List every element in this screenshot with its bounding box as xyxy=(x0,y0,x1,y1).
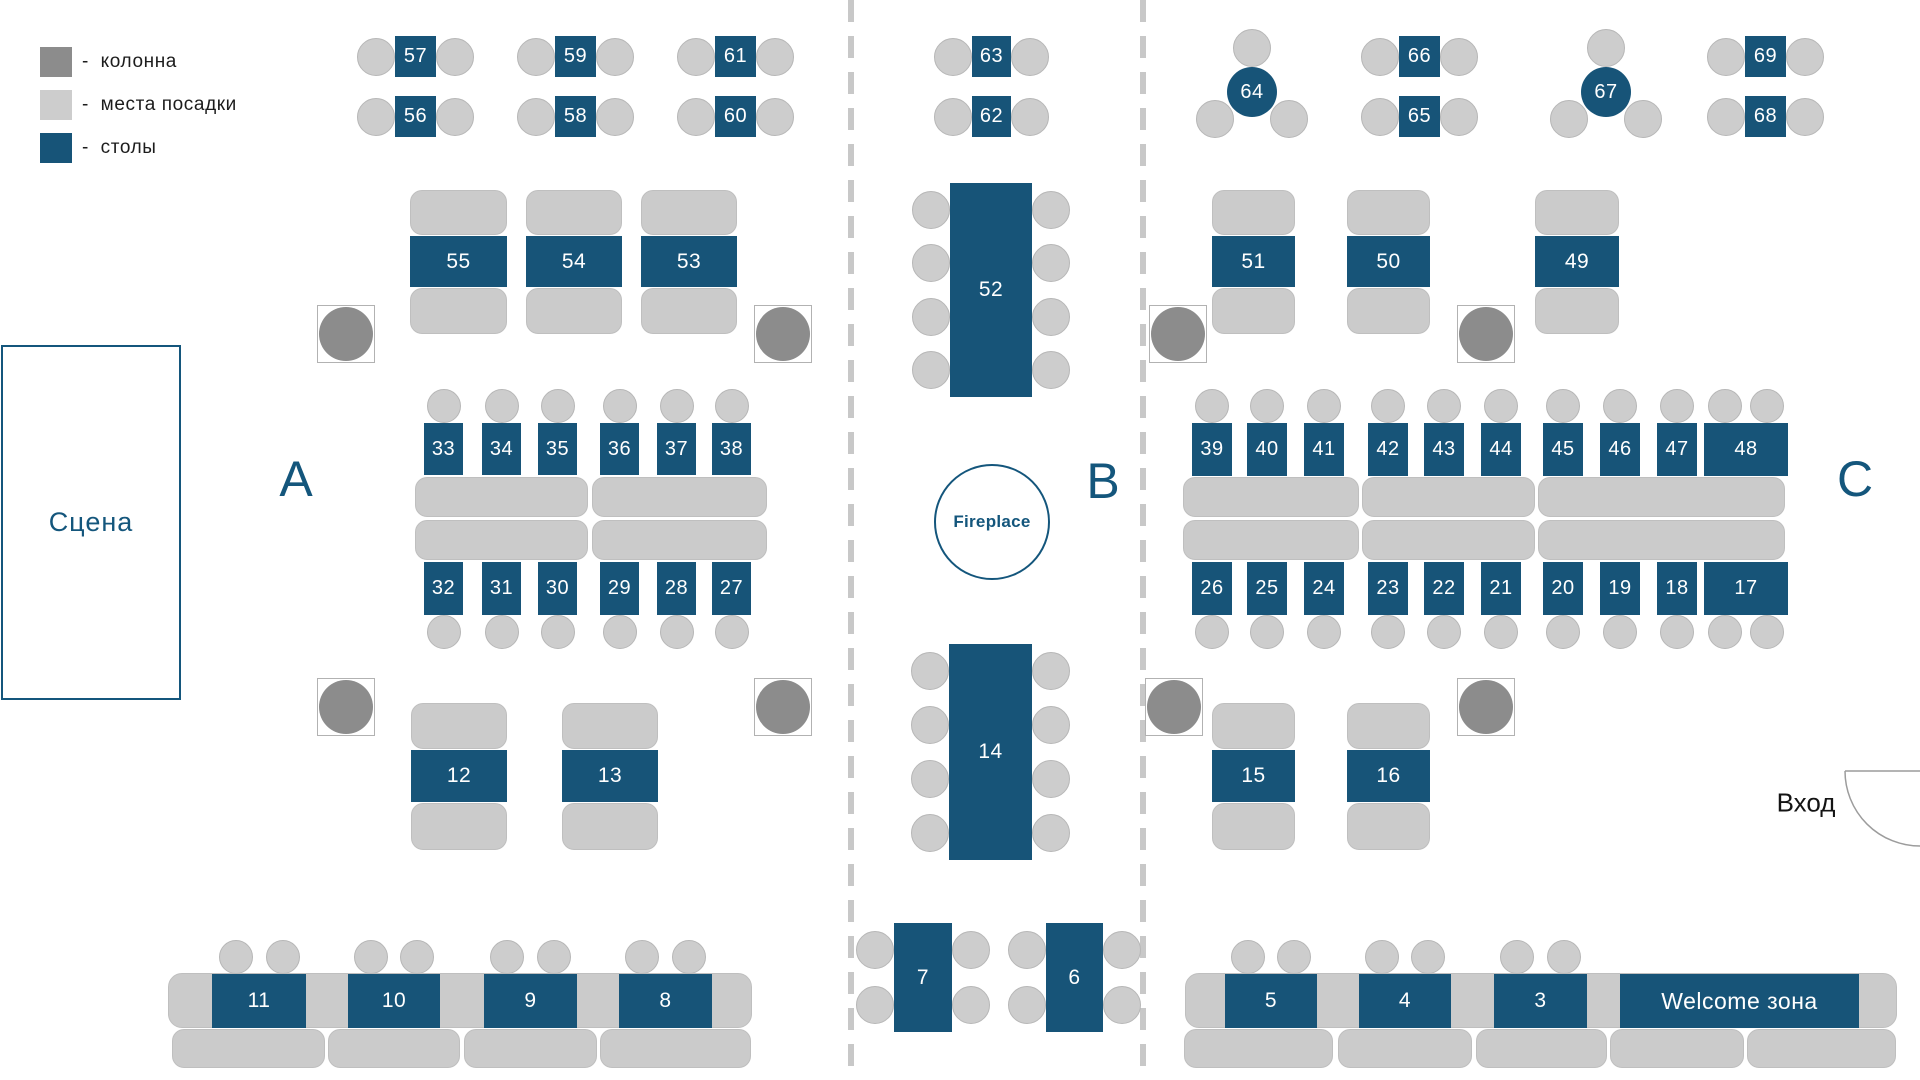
seat xyxy=(952,931,990,969)
seat xyxy=(1032,706,1070,744)
seat xyxy=(436,98,474,136)
seat xyxy=(1750,389,1784,423)
table-15[interactable]: 15 xyxy=(1212,750,1295,802)
seating-bench xyxy=(410,190,507,235)
table-3[interactable]: 3 xyxy=(1494,974,1587,1028)
table-7[interactable]: 7 xyxy=(894,923,952,1032)
seating-bench xyxy=(1538,477,1785,517)
seat xyxy=(1011,38,1049,76)
column-circle xyxy=(1459,680,1513,734)
column-circle xyxy=(756,680,810,734)
table-18[interactable]: 18 xyxy=(1657,562,1697,615)
table-61[interactable]: 61 xyxy=(715,36,756,77)
table-number: 37 xyxy=(665,438,688,461)
table-35[interactable]: 35 xyxy=(538,423,577,475)
table-32[interactable]: 32 xyxy=(424,562,463,615)
table-number: 63 xyxy=(980,45,1003,68)
seat xyxy=(856,931,894,969)
table-number: 6 xyxy=(1068,966,1080,990)
seating-bench xyxy=(411,703,507,749)
welcome-zone-label: Welcome зона xyxy=(1661,988,1817,1015)
seat xyxy=(266,940,300,974)
table-48[interactable]: 48 xyxy=(1704,423,1788,476)
seating-bench xyxy=(1212,703,1295,749)
table-64[interactable]: 64 xyxy=(1227,67,1277,117)
table-68[interactable]: 68 xyxy=(1745,96,1786,137)
seat xyxy=(1307,389,1341,423)
seating-bench xyxy=(1347,190,1430,235)
table-number: 38 xyxy=(720,438,743,461)
table-38[interactable]: 38 xyxy=(712,423,751,475)
table-number: 18 xyxy=(1665,577,1688,600)
table-number: 22 xyxy=(1432,577,1455,600)
seat xyxy=(1361,98,1399,136)
seat xyxy=(1371,615,1405,649)
seat xyxy=(672,940,706,974)
seating-bench xyxy=(328,1029,460,1068)
table-33[interactable]: 33 xyxy=(424,423,463,475)
column xyxy=(1457,305,1515,363)
seat xyxy=(756,98,794,136)
table-23[interactable]: 23 xyxy=(1368,562,1408,615)
table-54[interactable]: 54 xyxy=(526,236,622,287)
seat xyxy=(934,98,972,136)
seat xyxy=(715,389,749,423)
seat xyxy=(1603,615,1637,649)
seating-bench xyxy=(1347,703,1430,749)
seating-bench xyxy=(562,803,658,850)
seating-bench xyxy=(1184,1029,1333,1068)
table-43[interactable]: 43 xyxy=(1424,423,1464,476)
seating-bench xyxy=(592,520,767,560)
table-number: 49 xyxy=(1565,250,1589,274)
table-46[interactable]: 46 xyxy=(1600,423,1640,476)
seating-bench xyxy=(641,288,737,334)
table-47[interactable]: 47 xyxy=(1657,423,1697,476)
table-number: 26 xyxy=(1200,577,1223,600)
seat xyxy=(1786,98,1824,136)
seat xyxy=(1500,940,1534,974)
seating-bench xyxy=(415,520,588,560)
table-number: 15 xyxy=(1241,764,1265,788)
table-56[interactable]: 56 xyxy=(395,96,436,137)
table-number: 4 xyxy=(1399,989,1411,1013)
seating-bench xyxy=(464,1029,597,1068)
seat xyxy=(485,615,519,649)
column xyxy=(1457,678,1515,736)
table-65[interactable]: 65 xyxy=(1399,96,1440,137)
table-number: 33 xyxy=(432,438,455,461)
table-19[interactable]: 19 xyxy=(1600,562,1640,615)
table-number: 45 xyxy=(1551,438,1574,461)
table-69[interactable]: 69 xyxy=(1745,36,1786,77)
seat xyxy=(911,652,949,690)
seat xyxy=(596,98,634,136)
table-number: 67 xyxy=(1594,81,1617,104)
seating-bench xyxy=(1347,288,1430,334)
table-number: 39 xyxy=(1200,438,1223,461)
column-circle xyxy=(1151,307,1205,361)
table-14[interactable]: 14 xyxy=(949,644,1032,860)
table-number: 40 xyxy=(1255,438,1278,461)
seat xyxy=(603,615,637,649)
seat xyxy=(1546,389,1580,423)
table-number: 28 xyxy=(665,577,688,600)
seat xyxy=(1231,940,1265,974)
table-number: 36 xyxy=(608,438,631,461)
seat xyxy=(1361,38,1399,76)
table-number: 69 xyxy=(1754,45,1777,68)
seat xyxy=(517,98,555,136)
seat xyxy=(1708,389,1742,423)
table-67[interactable]: 67 xyxy=(1581,67,1631,117)
seating-bench xyxy=(1212,190,1295,235)
seat xyxy=(1484,389,1518,423)
table-12[interactable]: 12 xyxy=(411,750,507,802)
table-number: 61 xyxy=(724,45,747,68)
seat xyxy=(1103,931,1141,969)
seat xyxy=(952,986,990,1024)
seat xyxy=(660,615,694,649)
table-number: 47 xyxy=(1665,438,1688,461)
seat xyxy=(1032,652,1070,690)
table-number: 14 xyxy=(978,740,1002,764)
seating-bench xyxy=(1183,520,1359,560)
seating-bench xyxy=(526,288,622,334)
seat xyxy=(911,760,949,798)
table-number: 35 xyxy=(546,438,569,461)
legend-item-tables: - столы xyxy=(40,133,237,163)
seat xyxy=(517,38,555,76)
stage: Сцена xyxy=(1,345,181,700)
table-13[interactable]: 13 xyxy=(562,750,658,802)
seat xyxy=(625,940,659,974)
seat xyxy=(1750,615,1784,649)
seating-bench xyxy=(1535,190,1619,235)
section-label-a: А xyxy=(279,450,312,508)
table-number: 64 xyxy=(1240,81,1263,104)
seating-bench xyxy=(526,190,622,235)
section-label-c: С xyxy=(1837,450,1873,508)
table-number: 24 xyxy=(1312,577,1335,600)
table-number: 50 xyxy=(1376,250,1400,274)
column xyxy=(1145,678,1203,736)
seating-bench xyxy=(1347,803,1430,850)
table-63[interactable]: 63 xyxy=(972,36,1011,77)
seat xyxy=(357,98,395,136)
table-number: 8 xyxy=(659,989,671,1013)
seat xyxy=(1427,389,1461,423)
seat xyxy=(1427,615,1461,649)
seat xyxy=(490,940,524,974)
legend-label-tables: - столы xyxy=(82,137,157,159)
column-circle xyxy=(319,307,373,361)
table-number: 32 xyxy=(432,577,455,600)
seat xyxy=(1440,38,1478,76)
zone-divider-line xyxy=(1140,0,1146,1080)
table-number: 46 xyxy=(1608,438,1631,461)
seating-bench xyxy=(1338,1029,1472,1068)
seat xyxy=(1660,615,1694,649)
seat xyxy=(357,38,395,76)
table-66[interactable]: 66 xyxy=(1399,36,1440,77)
table-number: 34 xyxy=(490,438,513,461)
table-number: 53 xyxy=(677,250,701,274)
table-number: 16 xyxy=(1376,764,1400,788)
table-swatch-icon xyxy=(40,133,72,163)
section-label-b: В xyxy=(1086,452,1119,510)
seat xyxy=(1277,940,1311,974)
seat xyxy=(1587,29,1625,67)
table-22[interactable]: 22 xyxy=(1424,562,1464,615)
table-62[interactable]: 62 xyxy=(972,96,1011,137)
table-number: 68 xyxy=(1754,105,1777,128)
seat xyxy=(1032,298,1070,336)
seat xyxy=(1371,389,1405,423)
legend: - колонна - места посадки - столы xyxy=(40,47,237,163)
fireplace: Fireplace xyxy=(934,464,1050,580)
column xyxy=(317,678,375,736)
table-26[interactable]: 26 xyxy=(1192,562,1232,615)
table-37[interactable]: 37 xyxy=(657,423,696,475)
seat xyxy=(1411,940,1445,974)
seat xyxy=(354,940,388,974)
seat xyxy=(1233,29,1271,67)
seat xyxy=(1603,389,1637,423)
table-34[interactable]: 34 xyxy=(482,423,521,475)
table-number: 52 xyxy=(979,278,1003,302)
seat xyxy=(541,615,575,649)
seat xyxy=(934,38,972,76)
legend-item-seats: - места посадки xyxy=(40,90,237,120)
table-number: 5 xyxy=(1265,989,1277,1013)
table-number: 23 xyxy=(1376,577,1399,600)
table-51[interactable]: 51 xyxy=(1212,236,1295,287)
seat xyxy=(427,389,461,423)
table-49[interactable]: 49 xyxy=(1535,236,1619,287)
seat xyxy=(1708,615,1742,649)
seating-bench xyxy=(1183,477,1359,517)
seat xyxy=(1032,760,1070,798)
seat xyxy=(1707,98,1745,136)
column-circle xyxy=(1147,680,1201,734)
seat xyxy=(436,38,474,76)
table-number: 3 xyxy=(1534,989,1546,1013)
fireplace-label: Fireplace xyxy=(953,512,1030,532)
seating-bench xyxy=(1362,520,1535,560)
table-number: 17 xyxy=(1734,577,1757,600)
table-52[interactable]: 52 xyxy=(950,183,1032,397)
seat xyxy=(1660,389,1694,423)
table-number: 30 xyxy=(546,577,569,600)
column-circle xyxy=(319,680,373,734)
seat xyxy=(485,389,519,423)
table-number: 51 xyxy=(1241,250,1265,274)
welcome-zone[interactable]: Welcome зона xyxy=(1620,974,1859,1028)
seat xyxy=(677,98,715,136)
table-number: 27 xyxy=(720,577,743,600)
table-number: 62 xyxy=(980,105,1003,128)
seating-bench xyxy=(1610,1029,1744,1068)
seat xyxy=(660,389,694,423)
table-31[interactable]: 31 xyxy=(482,562,521,615)
seat xyxy=(427,615,461,649)
table-44[interactable]: 44 xyxy=(1481,423,1521,476)
table-number: 12 xyxy=(447,764,471,788)
seat xyxy=(1196,100,1234,138)
table-50[interactable]: 50 xyxy=(1347,236,1430,287)
seat-swatch-icon xyxy=(40,90,72,120)
table-number: 48 xyxy=(1734,438,1757,461)
seat xyxy=(912,351,950,389)
table-45[interactable]: 45 xyxy=(1543,423,1583,476)
legend-label-column: - колонна xyxy=(82,51,177,73)
table-number: 7 xyxy=(917,966,929,990)
seat xyxy=(756,38,794,76)
seating-bench xyxy=(1212,803,1295,850)
table-30[interactable]: 30 xyxy=(538,562,577,615)
legend-item-column: - колонна xyxy=(40,47,237,77)
table-11[interactable]: 11 xyxy=(212,974,306,1028)
seat xyxy=(541,389,575,423)
seat xyxy=(677,38,715,76)
seating-bench xyxy=(411,803,507,850)
table-8[interactable]: 8 xyxy=(619,974,712,1028)
seating-bench xyxy=(1538,520,1785,560)
seat xyxy=(1270,100,1308,138)
seat xyxy=(912,244,950,282)
table-25[interactable]: 25 xyxy=(1247,562,1287,615)
table-number: 9 xyxy=(524,989,536,1013)
table-number: 41 xyxy=(1312,438,1335,461)
table-number: 19 xyxy=(1608,577,1631,600)
entrance-label: Вход xyxy=(1777,788,1836,819)
table-4[interactable]: 4 xyxy=(1359,974,1451,1028)
zone-divider-line xyxy=(848,0,854,1080)
table-number: 44 xyxy=(1489,438,1512,461)
table-42[interactable]: 42 xyxy=(1368,423,1408,476)
table-60[interactable]: 60 xyxy=(715,96,756,137)
seating-bench xyxy=(1362,477,1535,517)
seating-bench xyxy=(415,477,588,517)
table-number: 13 xyxy=(598,764,622,788)
seat xyxy=(1550,100,1588,138)
table-28[interactable]: 28 xyxy=(657,562,696,615)
seat xyxy=(911,706,949,744)
seating-bench xyxy=(1747,1029,1896,1068)
table-59[interactable]: 59 xyxy=(555,36,596,77)
table-39[interactable]: 39 xyxy=(1192,423,1232,476)
seat xyxy=(537,940,571,974)
table-number: 57 xyxy=(404,45,427,68)
seating-bench xyxy=(1212,288,1295,334)
column xyxy=(317,305,375,363)
seating-bench xyxy=(1535,288,1619,334)
seating-bench xyxy=(172,1029,325,1068)
seat xyxy=(1011,98,1049,136)
seat xyxy=(400,940,434,974)
seat xyxy=(1032,191,1070,229)
seat xyxy=(1032,351,1070,389)
seat xyxy=(911,814,949,852)
seat xyxy=(1440,98,1478,136)
seat xyxy=(1195,615,1229,649)
table-number: 56 xyxy=(404,105,427,128)
table-number: 58 xyxy=(564,105,587,128)
table-41[interactable]: 41 xyxy=(1304,423,1344,476)
table-number: 66 xyxy=(1408,45,1431,68)
seat xyxy=(856,986,894,1024)
seat xyxy=(219,940,253,974)
stage-label: Сцена xyxy=(49,507,134,538)
table-number: 55 xyxy=(446,250,470,274)
table-9[interactable]: 9 xyxy=(484,974,577,1028)
table-number: 43 xyxy=(1432,438,1455,461)
table-number: 54 xyxy=(562,250,586,274)
column-swatch-icon xyxy=(40,47,72,77)
table-21[interactable]: 21 xyxy=(1481,562,1521,615)
seat xyxy=(1250,615,1284,649)
table-29[interactable]: 29 xyxy=(600,562,639,615)
seat xyxy=(603,389,637,423)
seat xyxy=(1307,615,1341,649)
table-10[interactable]: 10 xyxy=(348,974,440,1028)
table-57[interactable]: 57 xyxy=(395,36,436,77)
seat xyxy=(1546,615,1580,649)
table-36[interactable]: 36 xyxy=(600,423,639,475)
table-40[interactable]: 40 xyxy=(1247,423,1287,476)
table-20[interactable]: 20 xyxy=(1543,562,1583,615)
table-number: 20 xyxy=(1551,577,1574,600)
seat xyxy=(1786,38,1824,76)
table-number: 21 xyxy=(1489,577,1512,600)
seating-bench xyxy=(1476,1029,1607,1068)
table-53[interactable]: 53 xyxy=(641,236,737,287)
seating-bench xyxy=(600,1029,751,1068)
table-number: 65 xyxy=(1408,105,1431,128)
table-6[interactable]: 6 xyxy=(1046,923,1103,1032)
seat xyxy=(912,298,950,336)
seating-bench xyxy=(641,190,737,235)
seat xyxy=(596,38,634,76)
seating-bench xyxy=(562,703,658,749)
seating-bench xyxy=(592,477,767,517)
column xyxy=(754,678,812,736)
floor-plan: - колонна - места посадки - столы Сцена … xyxy=(0,0,1920,1080)
seat xyxy=(1008,986,1046,1024)
table-17[interactable]: 17 xyxy=(1704,562,1788,615)
table-16[interactable]: 16 xyxy=(1347,750,1430,802)
table-number: 29 xyxy=(608,577,631,600)
seat xyxy=(1484,615,1518,649)
seat xyxy=(1195,389,1229,423)
table-number: 60 xyxy=(724,105,747,128)
table-58[interactable]: 58 xyxy=(555,96,596,137)
seat xyxy=(715,615,749,649)
seat xyxy=(1008,931,1046,969)
seat xyxy=(1032,814,1070,852)
column xyxy=(1149,305,1207,363)
table-27[interactable]: 27 xyxy=(712,562,751,615)
table-number: 10 xyxy=(382,989,406,1013)
table-number: 59 xyxy=(564,45,587,68)
table-55[interactable]: 55 xyxy=(410,236,507,287)
table-number: 25 xyxy=(1255,577,1278,600)
table-number: 42 xyxy=(1376,438,1399,461)
table-24[interactable]: 24 xyxy=(1304,562,1344,615)
table-5[interactable]: 5 xyxy=(1225,974,1317,1028)
column-circle xyxy=(756,307,810,361)
